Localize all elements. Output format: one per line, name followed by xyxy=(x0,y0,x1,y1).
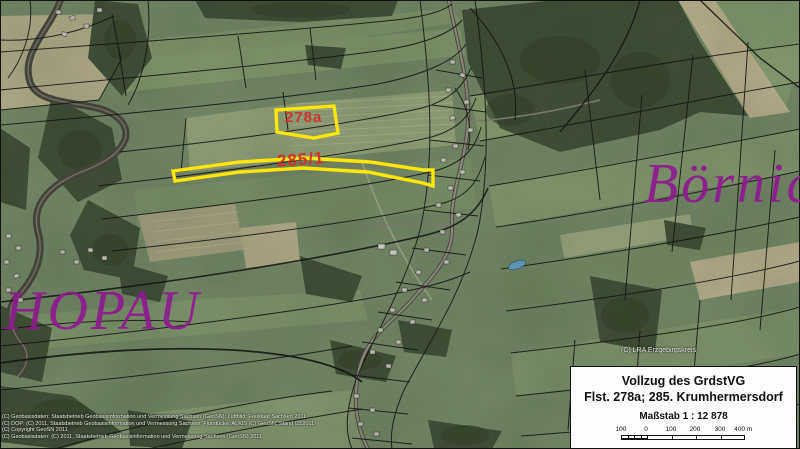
copyright-line: (C) Geobasisdaten: (C) 2011, Staatsbetri… xyxy=(2,434,314,441)
scale-bar-label: 100 xyxy=(616,426,627,433)
place-name-zschopau: HOPAU xyxy=(4,283,202,339)
parcel-label-285-1: 285/1 xyxy=(276,148,325,171)
legend-scale-text: Maßstab 1 : 12 878 xyxy=(571,411,796,422)
scale-bar-ruler xyxy=(621,435,745,440)
legend-subtitle: Flst. 278a; 285. Krumhermersdorf xyxy=(571,390,796,404)
scale-bar-label: 400 m xyxy=(734,426,752,433)
parcel-label-278a: 278a xyxy=(285,109,322,126)
legend-title: Vollzug des GrdstVG xyxy=(571,374,796,388)
cadastral-map-sheet: HOPAU Börnic 278a 285/1 (C) LRA Erzgebir… xyxy=(0,0,800,449)
copyright-line: (C) Geobasisdaten: Staatsbetrieb Geobasi… xyxy=(2,414,314,421)
legend-box: Vollzug des GrdstVG Flst. 278a; 285. Kru… xyxy=(570,366,797,449)
scale-bar-label: 0 xyxy=(644,426,648,433)
scale-bar-label: 300 xyxy=(715,426,726,433)
place-name-boernichen: Börnic xyxy=(644,156,800,212)
scale-bar-label: 200 xyxy=(690,426,701,433)
copyright-block: (C) Geobasisdaten: Staatsbetrieb Geobasi… xyxy=(2,414,314,441)
credit-lra-text: (C) LRA Erzgebirgskreis xyxy=(621,347,696,354)
scale-bar-label: 100 xyxy=(666,426,677,433)
scale-bar: 100 0 100 200 300 400 m xyxy=(621,426,745,442)
